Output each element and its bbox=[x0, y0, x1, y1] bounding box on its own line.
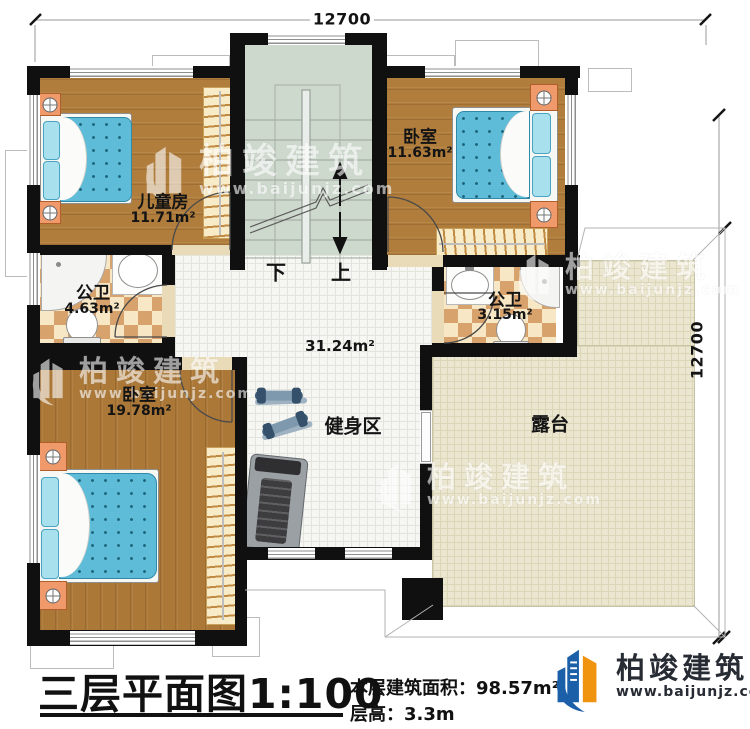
gym-label: 健身区 bbox=[324, 412, 381, 439]
wardrobe bbox=[436, 228, 548, 258]
sink bbox=[451, 270, 489, 300]
nightstand bbox=[38, 201, 61, 224]
exterior-outline bbox=[588, 68, 632, 92]
lamp-icon bbox=[42, 205, 57, 220]
wardrobe-rod bbox=[222, 452, 224, 621]
room-label-bedroom-top: 卧室 bbox=[403, 123, 437, 148]
stairs-up-label: 上 bbox=[331, 257, 351, 286]
window bbox=[27, 253, 40, 305]
room-label-bath-left: 公卫 bbox=[76, 279, 110, 304]
window bbox=[70, 66, 193, 78]
door-opening bbox=[182, 357, 232, 370]
wall bbox=[230, 45, 245, 270]
hall-floor bbox=[175, 255, 432, 357]
wardrobe-rod bbox=[439, 243, 545, 245]
hall-area-label: 31.24m² bbox=[305, 337, 375, 355]
dimension-right: 12700 bbox=[688, 318, 707, 382]
wall bbox=[27, 343, 175, 357]
floor-height-label: 层高： bbox=[350, 704, 404, 725]
terrace-label: 露台 bbox=[531, 410, 569, 437]
pillow bbox=[41, 477, 59, 527]
window bbox=[565, 95, 578, 185]
title-underline bbox=[40, 713, 343, 717]
wardrobe-rod bbox=[219, 91, 221, 235]
floor-plan-canvas: 柏竣建筑www.baijunjz.com 柏竣建筑www.baijunjz.co… bbox=[0, 0, 750, 729]
lamp-icon bbox=[537, 207, 552, 222]
room-area-bath-left: 4.63m² bbox=[64, 301, 119, 317]
lamp-icon bbox=[537, 90, 552, 105]
wall bbox=[432, 258, 563, 267]
brand-logo: 柏竣建筑 www.baijunjz.com bbox=[546, 642, 750, 712]
exterior-outline bbox=[455, 40, 539, 69]
floor-height-text: 层高：3.3m bbox=[350, 700, 455, 726]
pillow bbox=[43, 161, 60, 200]
window bbox=[268, 33, 345, 45]
window bbox=[425, 66, 520, 78]
pillow bbox=[41, 529, 59, 579]
room-label-bedroom-bottom: 卧室 bbox=[122, 381, 156, 406]
nightstand bbox=[38, 581, 67, 610]
room-area-bedroom-top: 11.63m² bbox=[387, 145, 452, 161]
pillow bbox=[532, 113, 551, 154]
treadmill bbox=[241, 453, 309, 553]
nightstand bbox=[530, 84, 558, 111]
lamp-icon bbox=[45, 588, 60, 603]
wall bbox=[432, 343, 568, 357]
room-label-children: 儿童房 bbox=[138, 188, 189, 213]
wall bbox=[372, 45, 387, 270]
exterior-outline bbox=[5, 150, 29, 277]
lamp-icon bbox=[42, 97, 57, 112]
window bbox=[70, 631, 195, 645]
pillow bbox=[532, 156, 551, 197]
door-opening bbox=[432, 291, 444, 343]
plan-title: 三层平面图1:100 bbox=[38, 660, 384, 720]
floor-area-label: 本层建筑面积： bbox=[350, 678, 476, 699]
sink bbox=[118, 253, 158, 288]
brand-name: 柏竣建筑 bbox=[616, 653, 750, 685]
room-area-bath-right: 3.15m² bbox=[477, 307, 532, 323]
terrace-door bbox=[421, 412, 431, 462]
treadmill-console bbox=[254, 457, 301, 476]
floor-area-text: 本层建筑面积：98.57m² bbox=[350, 674, 560, 700]
stairwell-floor bbox=[245, 45, 372, 267]
window bbox=[268, 548, 315, 559]
nightstand bbox=[38, 93, 61, 116]
dumbbell bbox=[255, 391, 303, 401]
nightstand bbox=[38, 442, 67, 471]
terrace-floor-main bbox=[432, 345, 695, 607]
door-opening bbox=[162, 285, 175, 337]
floor-height-value: 3.3m bbox=[404, 704, 455, 725]
brand-url: www.baijunjz.com bbox=[616, 685, 750, 700]
room-area-bedroom-bottom: 19.78m² bbox=[106, 403, 171, 419]
wall bbox=[235, 357, 247, 646]
door-opening bbox=[388, 255, 443, 267]
pillow bbox=[43, 121, 60, 160]
nightstand bbox=[530, 201, 558, 228]
room-area-children: 11.71m² bbox=[130, 210, 195, 226]
window bbox=[27, 95, 40, 185]
brand-logo-icon bbox=[546, 642, 608, 712]
dumbbell-rack bbox=[246, 378, 321, 452]
treadmill-belt bbox=[255, 477, 293, 544]
dimension-top: 12700 bbox=[310, 10, 374, 29]
lamp-icon bbox=[45, 449, 60, 464]
column bbox=[402, 578, 443, 620]
shower-drain-icon bbox=[542, 279, 547, 284]
window bbox=[345, 548, 392, 559]
window bbox=[27, 455, 40, 563]
wardrobe bbox=[206, 447, 237, 625]
shower-drain-icon bbox=[56, 262, 61, 267]
door-opening bbox=[172, 245, 230, 255]
terrace-floor-upper bbox=[577, 260, 695, 347]
stairs-down-label: 下 bbox=[266, 257, 286, 286]
